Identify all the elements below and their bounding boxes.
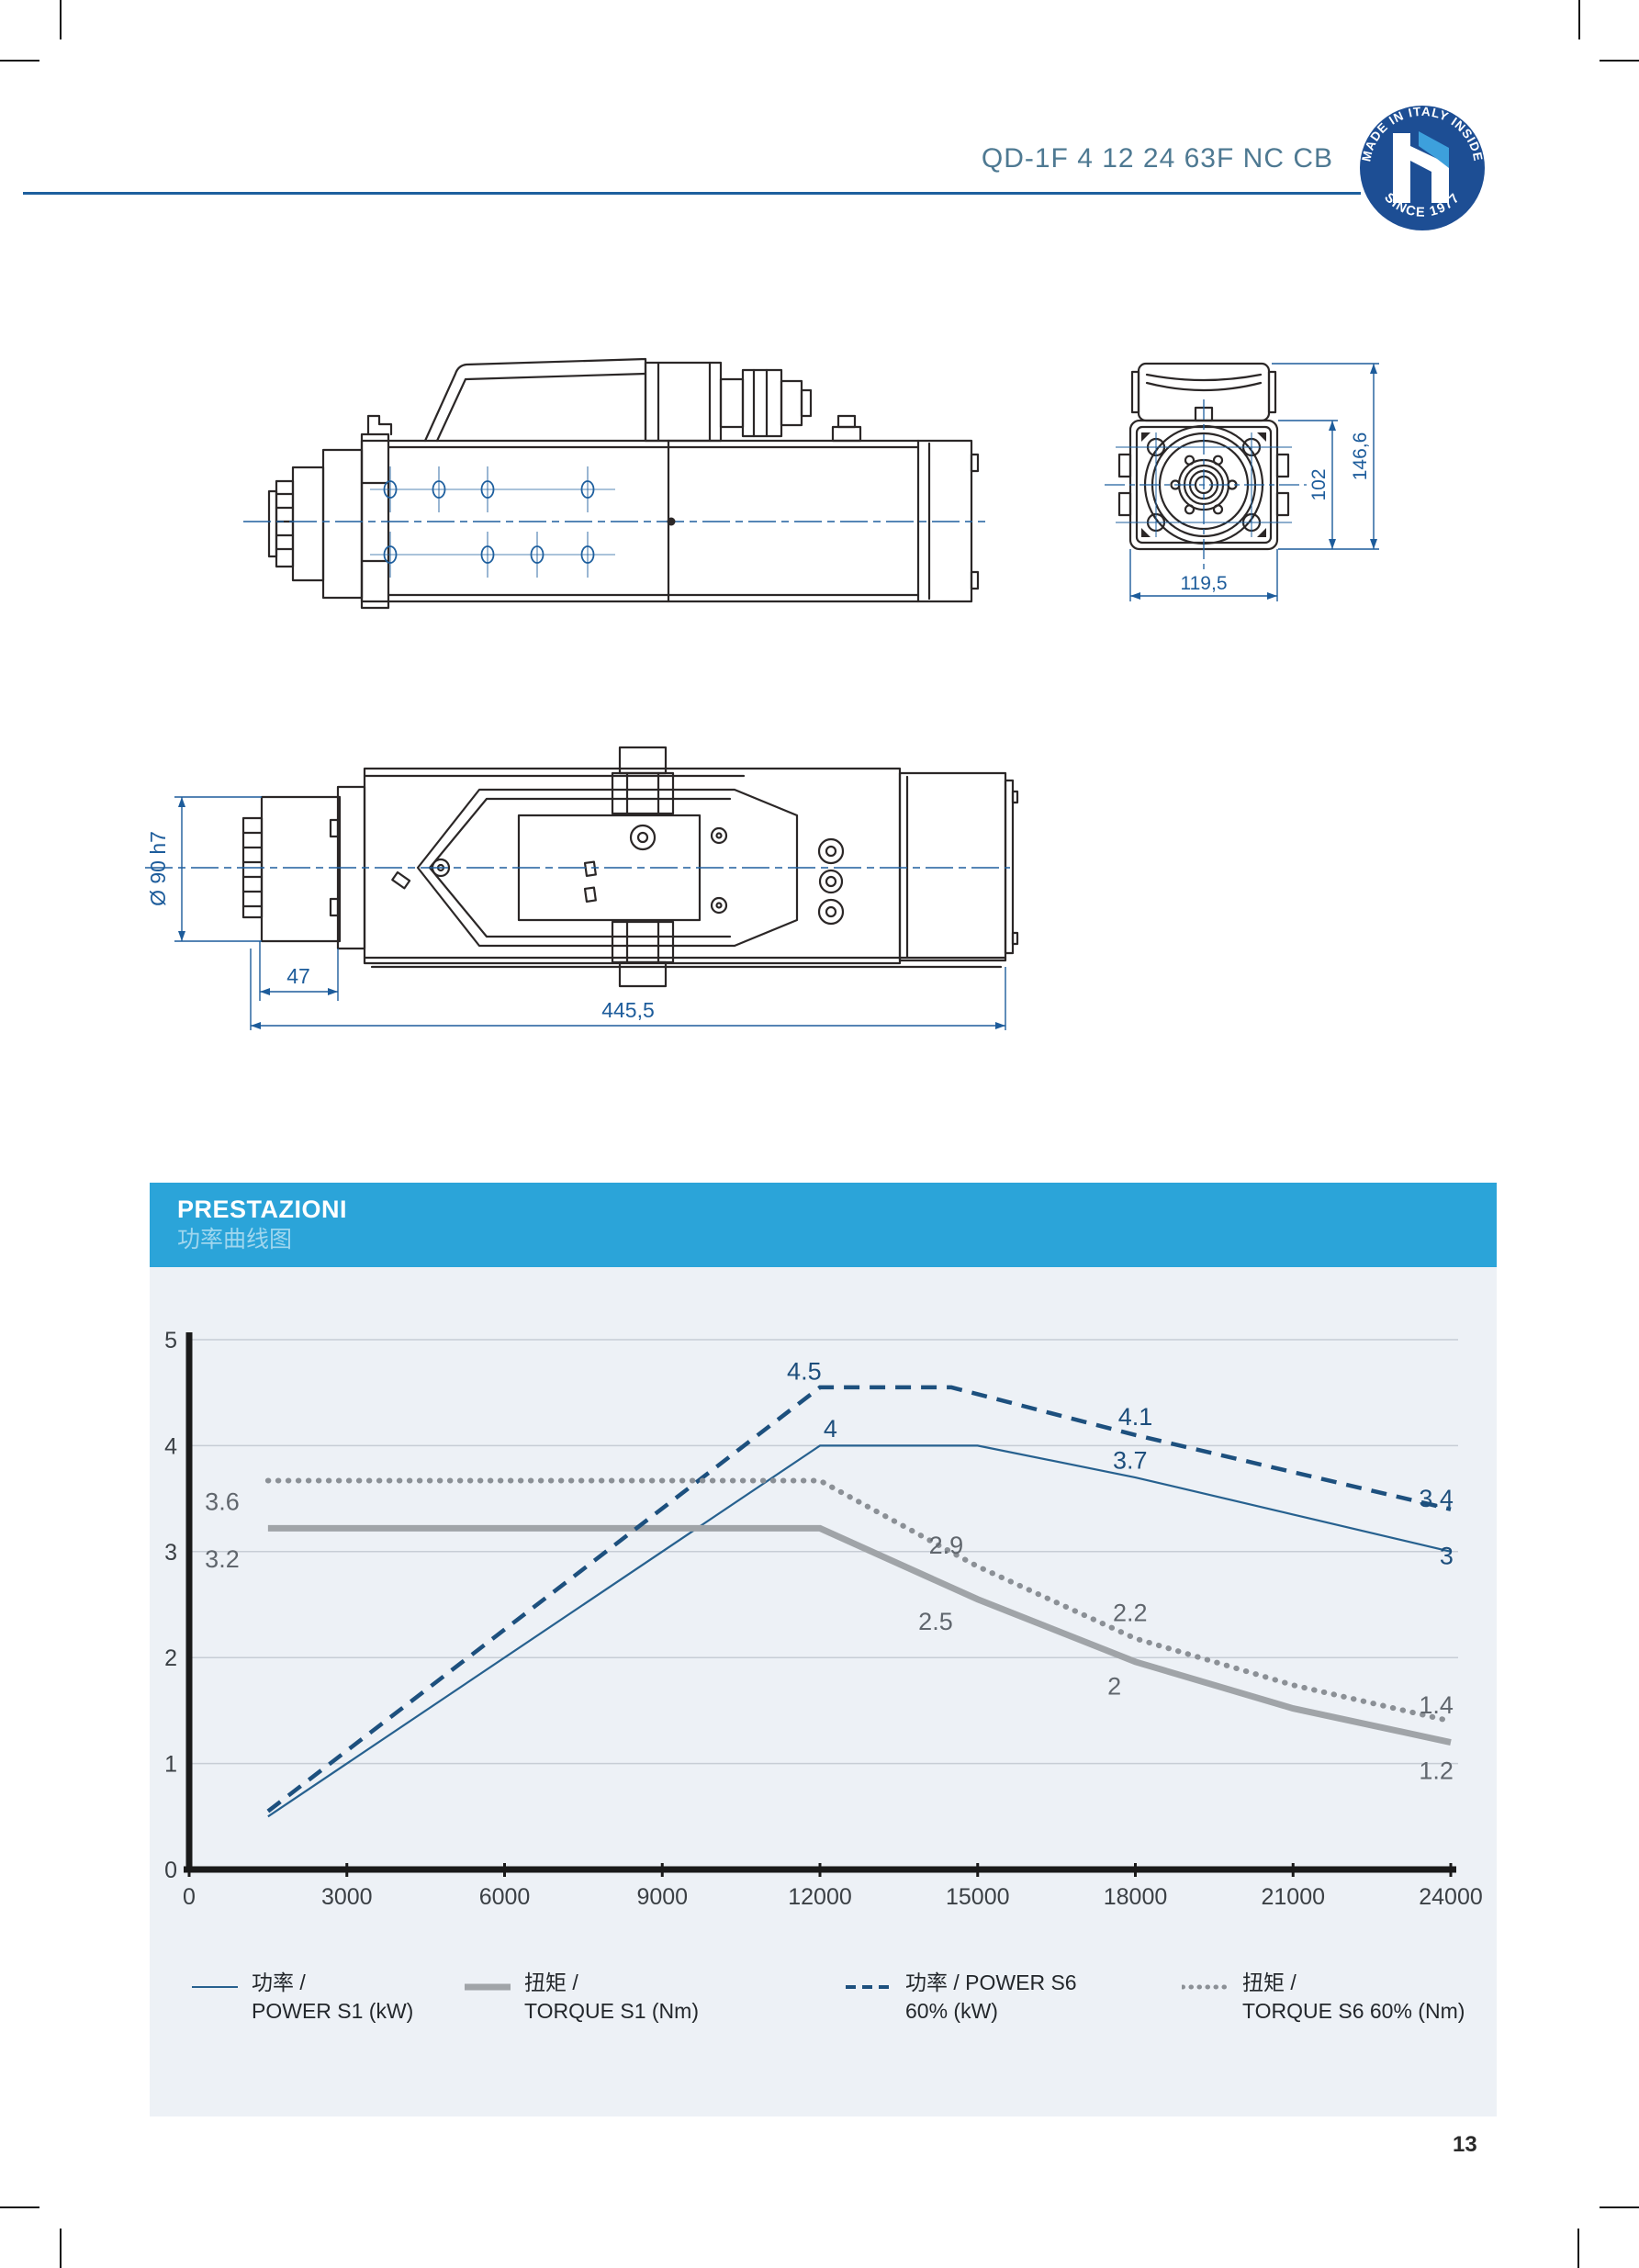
y-tick-label: 1	[164, 1752, 177, 1778]
crop-mark	[0, 2206, 39, 2208]
legend-label: 扭矩 /TORQUE S1 (Nm)	[524, 1969, 699, 2026]
y-tick-label: 3	[164, 1540, 177, 1566]
drawing-top-view: Ø 90 h7 47 445,5	[138, 735, 1019, 1047]
y-tick-label: 5	[164, 1328, 177, 1353]
side-view-outline	[269, 359, 978, 608]
legend-line-sample-icon	[845, 1969, 892, 2000]
series-dotted	[268, 1480, 1451, 1721]
x-tick-label: 21000	[1261, 1884, 1325, 1910]
legend-label-line2: 60% (kW)	[905, 1997, 1077, 2026]
chart-value-label: 2.9	[929, 1532, 964, 1559]
legend-item: 扭矩 /TORQUE S1 (Nm)	[464, 1969, 699, 2026]
chart-value-label: 1.2	[1419, 1757, 1454, 1785]
chart-value-label: 4.5	[787, 1358, 822, 1386]
dim-label-146-6: 146,6	[1350, 432, 1371, 481]
chart-value-label: 2.2	[1113, 1600, 1148, 1627]
performance-panel-header: PRESTAZIONI 功率曲线图	[150, 1183, 1497, 1267]
chart-value-label: 3.7	[1113, 1447, 1148, 1475]
x-tick-label: 9000	[636, 1884, 688, 1910]
x-tick-label: 0	[183, 1884, 196, 1910]
side-view-centerline-and-holes	[243, 466, 985, 578]
panel-subtitle: 功率曲线图	[177, 1226, 1497, 1254]
x-tick-label: 12000	[788, 1884, 852, 1910]
chart-value-label: 4.1	[1118, 1403, 1153, 1431]
crop-mark	[1578, 0, 1580, 39]
chart-value-label: 2	[1107, 1672, 1121, 1700]
legend-label-line1: 功率 / POWER S6	[905, 1969, 1077, 1997]
legend-line-sample-icon	[1182, 1969, 1229, 2000]
top-view-dimensions: Ø 90 h7 47 445,5	[146, 797, 1005, 1030]
legend-label: 功率 /POWER S1 (kW)	[252, 1969, 413, 2026]
page-number: 13	[1453, 2132, 1477, 2158]
legend-label: 功率 / POWER S660% (kW)	[905, 1969, 1077, 2026]
drawing-side-view	[234, 352, 992, 613]
y-tick-label: 2	[164, 1645, 177, 1671]
legend-label-line1: 扭矩 /	[1242, 1969, 1465, 1997]
legend-label-line1: 扭矩 /	[524, 1969, 699, 1997]
chart-value-label: 3.4	[1419, 1485, 1454, 1512]
x-tick-label: 6000	[479, 1884, 531, 1910]
crop-mark	[0, 60, 39, 62]
legend-label-line2: POWER S1 (kW)	[252, 1997, 413, 2026]
datasheet-page: QD-1F 4 12 24 63F NC CB MADE IN ITALY IN…	[0, 0, 1639, 2268]
crop-mark	[60, 2229, 62, 2268]
x-tick-label: 15000	[946, 1884, 1010, 1910]
panel-title: PRESTAZIONI	[177, 1195, 1497, 1226]
chart-value-label: 1.4	[1419, 1691, 1454, 1719]
x-tick-label: 3000	[321, 1884, 373, 1910]
chart-value-label: 3.6	[205, 1488, 240, 1516]
crop-mark	[60, 0, 62, 39]
header-divider	[23, 192, 1361, 195]
legend-line-sample-icon	[191, 1969, 239, 2000]
legend-label-line2: TORQUE S6 60% (Nm)	[1242, 1997, 1465, 2026]
crop-mark	[1600, 2206, 1639, 2208]
dim-label-47: 47	[286, 964, 310, 988]
y-tick-label: 0	[164, 1858, 177, 1883]
dim-label-445-5: 445,5	[601, 998, 655, 1022]
chart-value-label: 3	[1440, 1542, 1454, 1569]
legend-line-sample-icon	[464, 1969, 511, 2000]
page-title-model-code: QD-1F 4 12 24 63F NC CB	[643, 143, 1333, 174]
x-tick-label: 24000	[1419, 1884, 1483, 1910]
crop-mark	[1600, 60, 1639, 62]
legend-label-line1: 功率 /	[252, 1969, 413, 1997]
dim-label-102: 102	[1308, 468, 1330, 500]
legend-label-line2: TORQUE S1 (Nm)	[524, 1997, 699, 2026]
y-tick-label: 4	[164, 1433, 177, 1459]
series-solid-thick	[268, 1528, 1451, 1742]
chart-value-label: 4	[824, 1415, 837, 1443]
made-in-italy-badge-icon: MADE IN ITALY INSIDE SINCE 1977	[1358, 104, 1487, 232]
dim-label-diameter: Ø 90 h7	[146, 831, 170, 906]
legend-item: 功率 / POWER S660% (kW)	[845, 1969, 1077, 2026]
legend-item: 扭矩 /TORQUE S6 60% (Nm)	[1182, 1969, 1465, 2026]
chart-value-label: 3.2	[205, 1545, 240, 1573]
legend-label: 扭矩 /TORQUE S6 60% (Nm)	[1242, 1969, 1465, 2026]
top-view-outline	[243, 747, 1017, 986]
crop-mark	[1577, 2229, 1579, 2268]
drawing-front-view: 102 146,6 119,5	[1097, 352, 1400, 618]
series-dashed	[268, 1387, 1451, 1812]
dim-label-119-5: 119,5	[1181, 573, 1228, 594]
legend-item: 功率 /POWER S1 (kW)	[191, 1969, 413, 2026]
x-tick-label: 18000	[1104, 1884, 1168, 1910]
chart-value-label: 2.5	[918, 1608, 953, 1635]
performance-panel: PRESTAZIONI 功率曲线图 0300060009000120001500…	[150, 1183, 1497, 2116]
